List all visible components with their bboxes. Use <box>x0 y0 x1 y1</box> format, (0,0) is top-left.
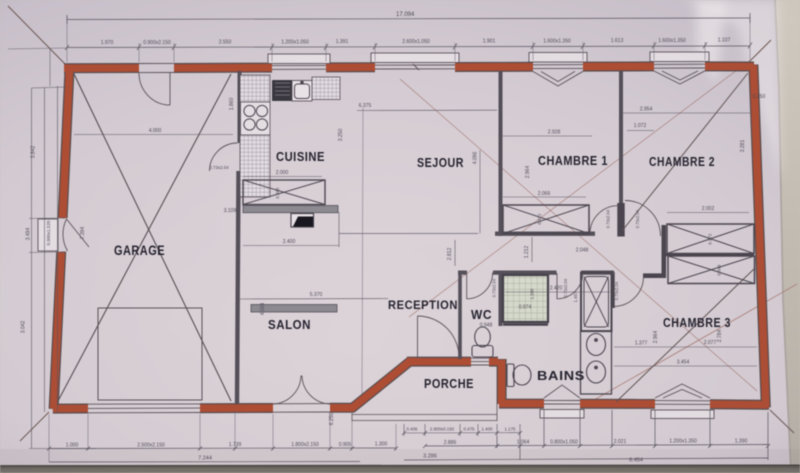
svg-text:GARAGE: GARAGE <box>114 243 165 258</box>
svg-text:1.175: 1.175 <box>505 427 517 432</box>
svg-text:CHAMBRE 1: CHAMBRE 1 <box>538 154 608 168</box>
svg-text:7.394: 7.394 <box>80 227 86 240</box>
svg-text:0.572: 0.572 <box>537 213 542 225</box>
svg-text:5.370: 5.370 <box>310 292 323 298</box>
svg-text:1.200x1.350: 1.200x1.350 <box>669 439 697 445</box>
svg-text:1.072: 1.072 <box>634 123 647 129</box>
svg-text:6.375: 6.375 <box>359 103 372 109</box>
svg-text:2.066: 2.066 <box>538 191 551 197</box>
svg-text:2.600x1.050: 2.600x1.050 <box>402 39 430 45</box>
svg-text:1.200: 1.200 <box>530 288 535 300</box>
svg-text:SALON: SALON <box>268 318 311 332</box>
svg-text:0.73x2.04: 0.73x2.04 <box>635 209 640 228</box>
svg-text:1.377: 1.377 <box>635 341 648 347</box>
svg-text:1.901: 1.901 <box>483 39 496 45</box>
svg-text:7.244: 7.244 <box>198 456 212 462</box>
svg-text:4.034: 4.034 <box>260 303 266 316</box>
svg-text:3.281: 3.281 <box>740 140 746 153</box>
svg-text:1.391: 1.391 <box>336 39 349 45</box>
svg-text:3.494: 3.494 <box>26 228 32 241</box>
svg-text:0.946: 0.946 <box>717 264 722 276</box>
svg-text:RECEPTION: RECEPTION <box>388 298 458 312</box>
svg-text:2.000: 2.000 <box>276 170 289 176</box>
svg-text:0.73x2.04: 0.73x2.04 <box>606 209 611 228</box>
svg-text:0.900x2.150: 0.900x2.150 <box>143 40 171 46</box>
svg-text:0.948: 0.948 <box>480 323 493 329</box>
svg-text:2.800x0.150: 2.800x0.150 <box>430 427 455 432</box>
svg-text:2.002: 2.002 <box>702 206 715 212</box>
svg-text:2.500x2.150: 2.500x2.150 <box>137 443 165 449</box>
svg-text:6.454: 6.454 <box>629 458 643 464</box>
svg-text:1.600x1.350: 1.600x1.350 <box>658 38 686 44</box>
svg-text:0.250: 0.250 <box>753 94 766 100</box>
svg-text:1.064: 1.064 <box>517 440 530 446</box>
svg-text:1.400: 1.400 <box>482 427 494 432</box>
svg-text:2.077: 2.077 <box>704 340 717 346</box>
svg-text:3.042: 3.042 <box>21 321 27 334</box>
svg-text:1.860: 1.860 <box>229 98 235 111</box>
svg-text:2.964: 2.964 <box>653 331 659 344</box>
svg-text:0.905: 0.905 <box>339 442 352 448</box>
svg-text:2.954: 2.954 <box>640 107 653 113</box>
svg-text:1.000: 1.000 <box>66 443 79 449</box>
svg-text:2.928: 2.928 <box>548 130 561 136</box>
svg-text:BAINS: BAINS <box>537 368 585 383</box>
svg-text:1.800x2.150: 1.800x2.150 <box>291 442 319 448</box>
svg-text:2.400: 2.400 <box>283 239 296 245</box>
svg-text:1.200x1.050: 1.200x1.050 <box>281 40 309 46</box>
svg-text:0.475: 0.475 <box>464 427 476 432</box>
svg-text:0.73x2.04: 0.73x2.04 <box>563 278 568 297</box>
svg-text:3.109: 3.109 <box>224 208 237 214</box>
svg-text:3.842: 3.842 <box>31 146 37 159</box>
svg-text:1.390: 1.390 <box>735 439 748 445</box>
svg-text:2.964: 2.964 <box>525 166 531 179</box>
svg-text:2.784: 2.784 <box>717 330 723 343</box>
svg-text:2.886: 2.886 <box>444 440 457 446</box>
svg-text:3.286: 3.286 <box>423 454 437 460</box>
svg-text:CUISINE: CUISINE <box>276 150 325 164</box>
svg-text:0.73x2.04: 0.73x2.04 <box>614 281 619 300</box>
svg-text:4.000: 4.000 <box>149 128 162 134</box>
svg-text:1.600x1.350: 1.600x1.350 <box>543 39 571 45</box>
svg-text:0.73x2.04: 0.73x2.04 <box>209 165 229 170</box>
svg-text:WC: WC <box>471 307 492 322</box>
svg-text:1.739: 1.739 <box>229 442 242 448</box>
svg-text:2.420: 2.420 <box>550 286 563 292</box>
svg-text:CHAMBRE 2: CHAMBRE 2 <box>649 155 715 169</box>
svg-text:1.107: 1.107 <box>718 38 731 44</box>
svg-text:1.212: 1.212 <box>524 246 530 259</box>
svg-text:0.406: 0.406 <box>407 427 419 432</box>
svg-text:SEJOUR: SEJOUR <box>417 156 464 170</box>
svg-text:1.457: 1.457 <box>573 291 578 303</box>
svg-text:0.800x1.050: 0.800x1.050 <box>550 440 578 446</box>
svg-text:1.970: 1.970 <box>101 40 114 46</box>
svg-text:3.454: 3.454 <box>677 360 690 366</box>
svg-text:0.73x2.04: 0.73x2.04 <box>492 278 497 297</box>
svg-text:2.021: 2.021 <box>614 439 627 445</box>
svg-text:2.550: 2.550 <box>219 40 232 46</box>
svg-text:CHAMBRE 3: CHAMBRE 3 <box>663 316 731 330</box>
svg-text:0.380: 0.380 <box>275 187 280 199</box>
svg-text:6.250: 6.250 <box>329 413 335 426</box>
svg-text:PORCHE: PORCHE <box>424 376 474 391</box>
svg-text:2.048: 2.048 <box>576 248 589 254</box>
svg-text:3.250: 3.250 <box>338 129 344 142</box>
svg-text:17.094: 17.094 <box>396 12 415 18</box>
svg-text:0.972: 0.972 <box>708 233 713 245</box>
svg-text:2.812: 2.812 <box>447 248 453 261</box>
svg-text:0.900x1.520: 0.900x1.520 <box>46 220 51 245</box>
svg-text:0.974: 0.974 <box>519 305 532 311</box>
svg-text:4.096: 4.096 <box>473 152 479 165</box>
svg-text:1.613: 1.613 <box>611 38 624 44</box>
svg-text:1.300: 1.300 <box>375 442 388 448</box>
